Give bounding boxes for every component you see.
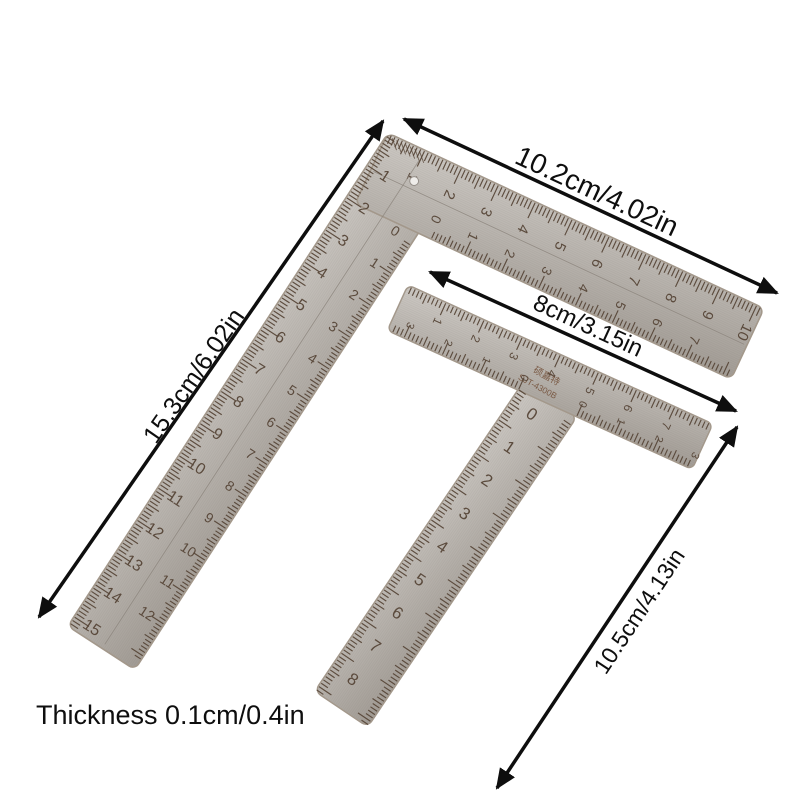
dimension-label-right: 10.5cm/4.13in xyxy=(588,544,690,679)
product-photo-rulers: 1234567891001234567 12345678910111213141… xyxy=(0,0,800,800)
product-image: 1234567891001234567 12345678910111213141… xyxy=(0,0,800,800)
thickness-label: Thickness 0.1cm/0.4in xyxy=(36,700,305,730)
t-square-ruler: 硕嘉特 SJT-4300B 123456701230123 012345678 xyxy=(315,285,715,727)
